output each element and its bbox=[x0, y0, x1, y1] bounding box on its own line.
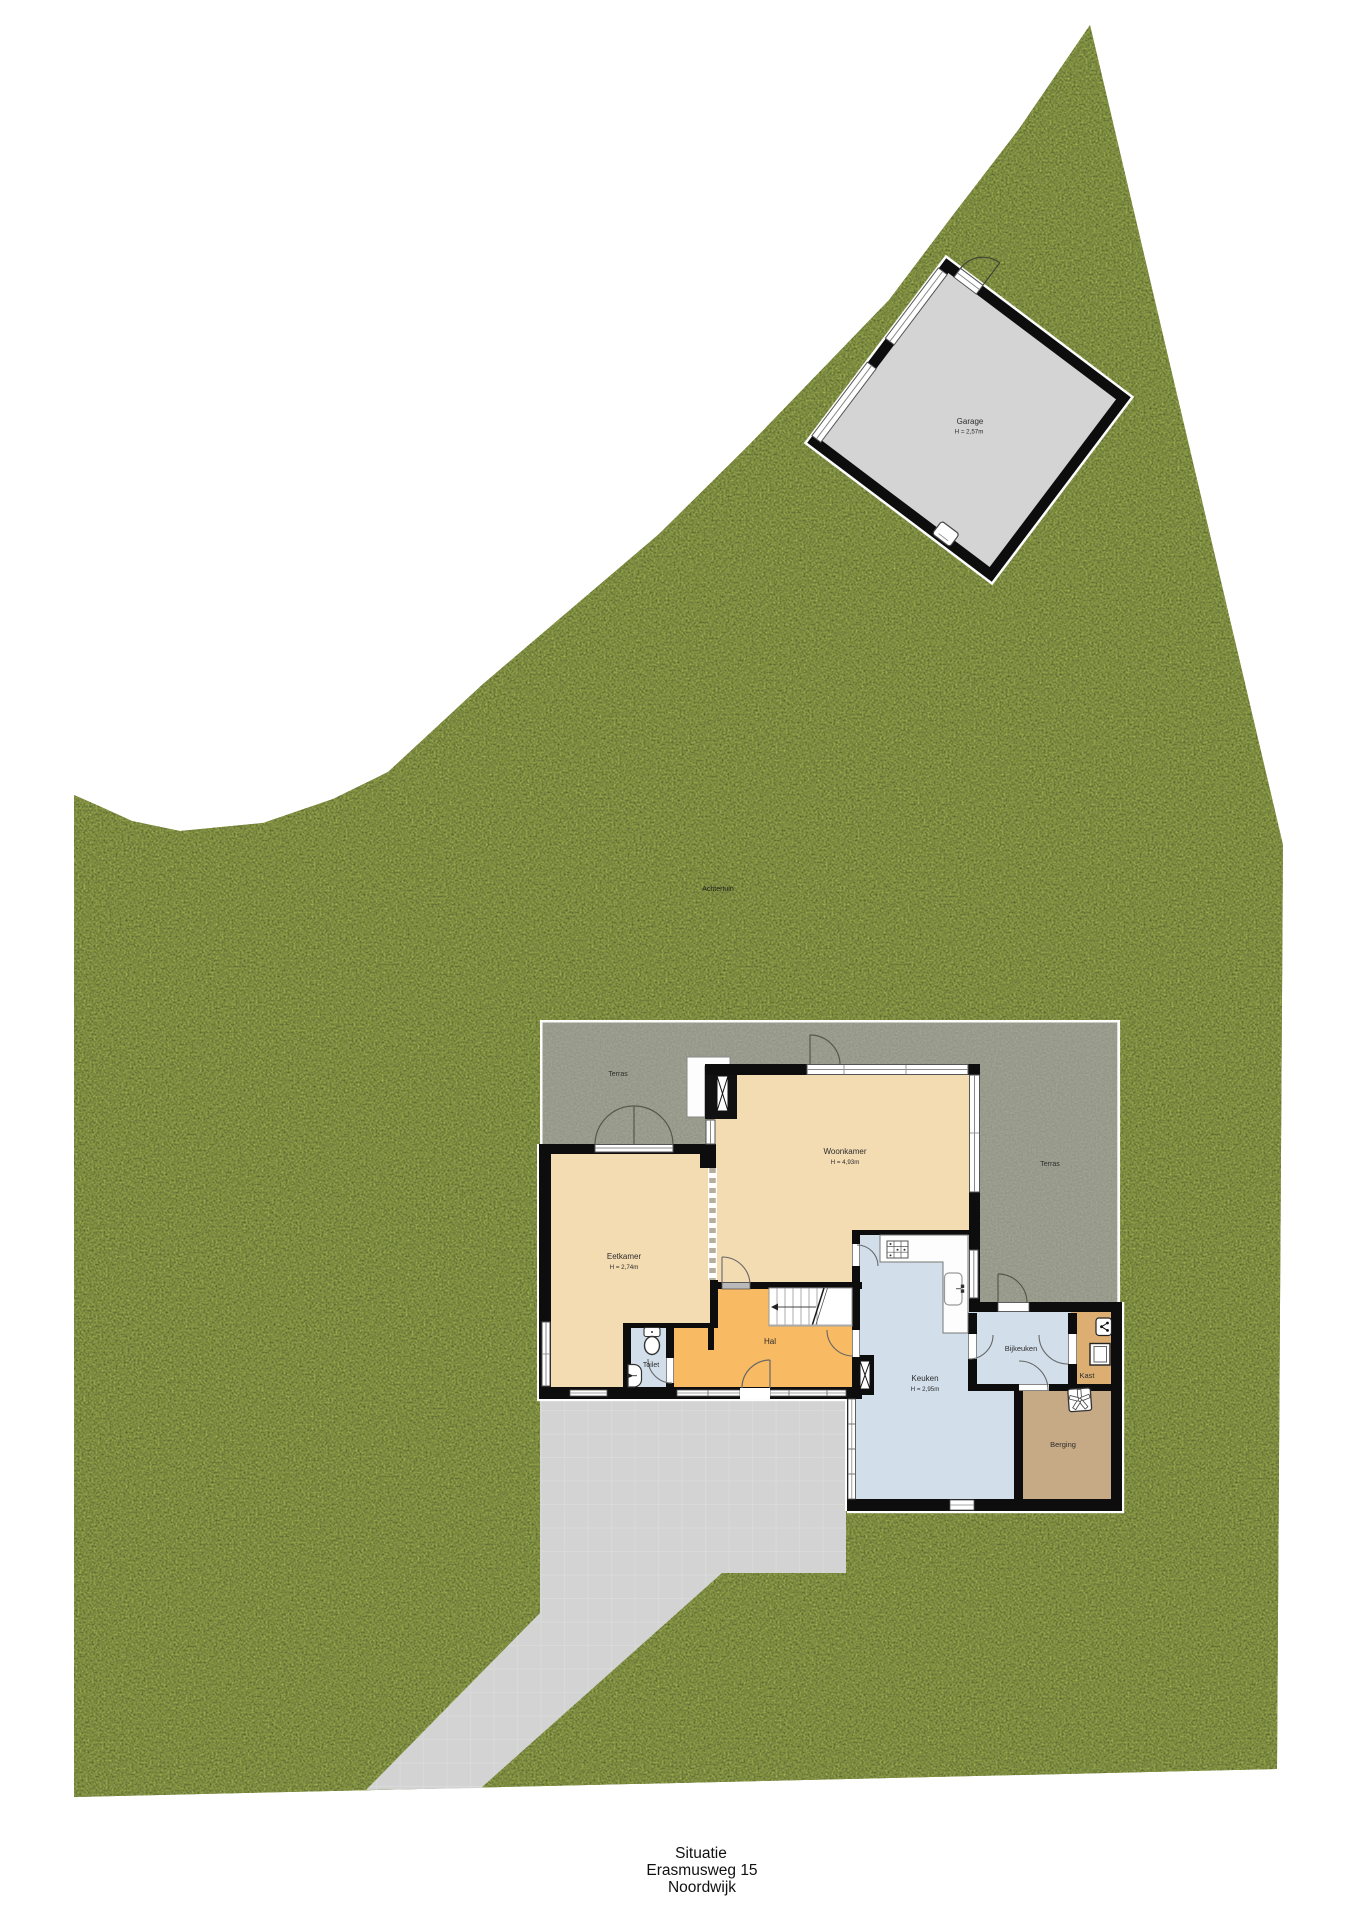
svg-text:Woonkamer: Woonkamer bbox=[824, 1147, 867, 1156]
svg-text:Bijkeuken: Bijkeuken bbox=[1005, 1344, 1038, 1353]
svg-text:Eetkamer: Eetkamer bbox=[607, 1252, 642, 1261]
svg-text:H = 2,57m: H = 2,57m bbox=[955, 429, 984, 436]
svg-text:Garage: Garage bbox=[957, 417, 984, 426]
svg-text:Erasmusweg 15: Erasmusweg 15 bbox=[646, 1862, 757, 1879]
svg-text:Situatie: Situatie bbox=[675, 1845, 727, 1862]
svg-text:H = 4,93m: H = 4,93m bbox=[831, 1159, 860, 1166]
svg-text:Terras: Terras bbox=[1040, 1161, 1060, 1168]
svg-text:Achtertuin: Achtertuin bbox=[702, 886, 734, 893]
svg-text:Berging: Berging bbox=[1050, 1440, 1076, 1449]
svg-text:Keuken: Keuken bbox=[911, 1374, 938, 1383]
svg-text:Kast: Kast bbox=[1079, 1371, 1095, 1380]
svg-text:H = 2,74m: H = 2,74m bbox=[610, 1264, 639, 1271]
svg-text:Noordwijk: Noordwijk bbox=[668, 1879, 736, 1896]
svg-text:Toilet: Toilet bbox=[643, 1362, 659, 1369]
svg-text:Terras: Terras bbox=[608, 1071, 628, 1078]
svg-text:H = 2,95m: H = 2,95m bbox=[911, 1386, 940, 1393]
svg-text:Hal: Hal bbox=[764, 1337, 776, 1346]
